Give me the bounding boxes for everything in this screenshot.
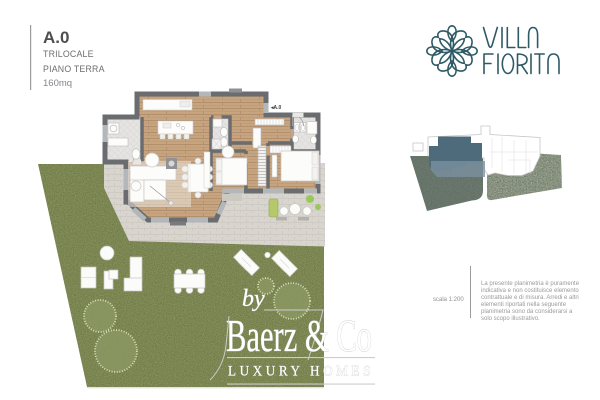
svg-text:LUXURY HOMES: LUXURY HOMES: [228, 364, 374, 380]
svg-text:Baerz & Co: Baerz & Co: [226, 310, 372, 361]
svg-text:by: by: [242, 286, 265, 312]
svg-text:A.0: A.0: [43, 28, 69, 47]
svg-text:planimetria sono da considerar: planimetria sono da considerarsi a: [481, 309, 573, 315]
svg-text:scala 1:200: scala 1:200: [433, 297, 464, 303]
svg-text:solo scopo illustrativo.: solo scopo illustrativo.: [481, 316, 540, 322]
svg-text:indicativa e non costituisce e: indicativa e non costituisce elemento: [481, 288, 579, 294]
svg-text:La presente planimetria è pura: La presente planimetria è puramente: [481, 281, 580, 287]
svg-text:elementi riportati nella segue: elementi riportati nella seguente: [481, 302, 567, 308]
svg-text:contrattuale e di misura. Arre: contrattuale e di misura. Arredi e altri: [481, 295, 579, 301]
svg-text:TRILOCALE: TRILOCALE: [43, 49, 94, 59]
svg-text:PIANO TERRA: PIANO TERRA: [43, 64, 105, 74]
svg-text:◂A.0: ◂A.0: [270, 105, 282, 111]
svg-text:160mq: 160mq: [43, 78, 72, 89]
